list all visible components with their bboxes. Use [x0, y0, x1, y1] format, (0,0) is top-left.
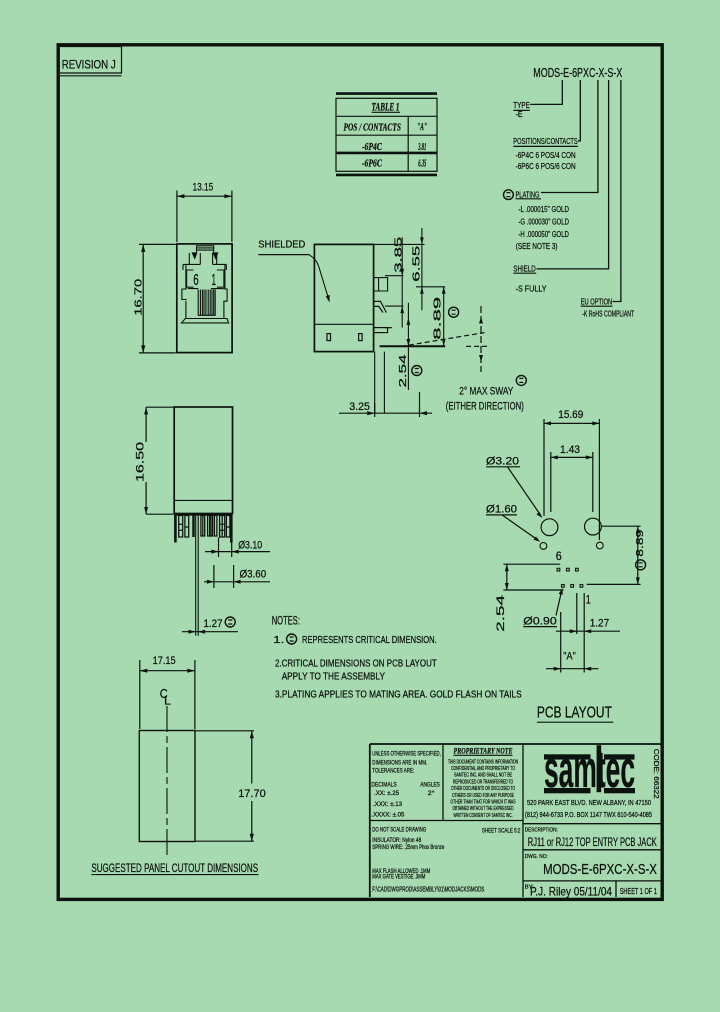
svg-text:Ø0.90: Ø0.90	[523, 616, 556, 628]
svg-text:15.69: 15.69	[558, 409, 583, 421]
svg-text:6: 6	[193, 272, 199, 289]
svg-text:1: 1	[586, 592, 591, 606]
svg-text:6.55: 6.55	[411, 245, 422, 282]
svg-text:CONFIDENTIAL AND PROPRIETARY T: CONFIDENTIAL AND PROPRIETARY TO	[451, 766, 515, 772]
svg-text:REPRODUCED OR TRANSFERRED TO: REPRODUCED OR TRANSFERRED TO	[453, 779, 513, 785]
svg-text:520 PARK EAST BLVD. NEW ALBANY: 520 PARK EAST BLVD. NEW ALBANY, IN 47150	[527, 800, 651, 807]
svg-text:DWG. NO:: DWG. NO:	[525, 854, 548, 860]
svg-text:6.35: 6.35	[418, 157, 426, 169]
svg-text:EU OPTION: EU OPTION	[581, 296, 613, 306]
svg-text:16.50: 16.50	[135, 442, 147, 482]
svg-text:OTHER THAN THAT FOR WHICH IT W: OTHER THAN THAT FOR WHICH IT WAS	[451, 800, 516, 806]
svg-text:1.43: 1.43	[560, 444, 580, 456]
svg-text:(812) 944-6733 P.O. BOX 1147: (812) 944-6733 P.O. BOX 1147 TWX 810-540…	[525, 812, 652, 819]
svg-text:-K RoHS COMPLIANT: -K RoHS COMPLIANT	[582, 309, 634, 318]
svg-text:REPRESENTS CRITICAL DIMENSION.: REPRESENTS CRITICAL DIMENSION.	[302, 635, 437, 646]
svg-text:2.54: 2.54	[398, 354, 409, 388]
svg-text:NOTES:: NOTES:	[272, 614, 300, 628]
svg-text:OTHER DOCUMENTS OR DISCLOSED T: OTHER DOCUMENTS OR DISCLOSED TO	[451, 786, 515, 792]
svg-text:DESCRIPTION:: DESCRIPTION:	[525, 828, 558, 834]
svg-text:.XXX: ±.13: .XXX: ±.13	[373, 801, 402, 808]
svg-text:SHEET 1 OF 1: SHEET 1 OF 1	[620, 886, 657, 896]
svg-text:Ø3.10: Ø3.10	[238, 540, 262, 552]
svg-text:8.89: 8.89	[635, 529, 646, 556]
svg-text:P.J. Riley 05/11/04: P.J. Riley 05/11/04	[530, 884, 612, 898]
svg-text:MODS-E-6PXC-X-S-X: MODS-E-6PXC-X-S-X	[543, 861, 657, 878]
svg-text:-6P6C 6 POS/6 CON: -6P6C 6 POS/6 CON	[516, 161, 576, 171]
svg-text:17.70: 17.70	[238, 788, 266, 800]
svg-text:PCB LAYOUT: PCB LAYOUT	[537, 705, 612, 722]
svg-text:OTHERS OR USED FOR ANY PURPOSE: OTHERS OR USED FOR ANY PURPOSE	[452, 793, 514, 799]
svg-text:SUGGESTED PANEL CUTOUT DIMENSI: SUGGESTED PANEL CUTOUT DIMENSIONS	[91, 861, 258, 875]
svg-text:ANGLES: ANGLES	[420, 781, 440, 788]
svg-text:POS / CONTACTS: POS / CONTACTS	[344, 122, 402, 134]
svg-text:-L .000015" GOLD: -L .000015" GOLD	[518, 204, 569, 214]
svg-text:2.54: 2.54	[495, 595, 507, 632]
svg-text:2° MAX SWAY: 2° MAX SWAY	[459, 385, 513, 397]
svg-text:3.81: 3.81	[418, 141, 426, 153]
svg-text:(EITHER DIRECTION): (EITHER DIRECTION)	[446, 400, 524, 412]
svg-text:6: 6	[556, 549, 562, 563]
svg-text:RJ11 or RJ12 TOP ENTRY PCB JA: RJ11 or RJ12 TOP ENTRY PCB JACK	[528, 835, 657, 849]
svg-text:-H .000050" GOLD: -H .000050" GOLD	[518, 229, 569, 239]
svg-text:Ø3.60: Ø3.60	[240, 569, 267, 581]
svg-text:SPRING WIRE: .25mm Phos Bronze: SPRING WIRE: .25mm Phos Bronze	[372, 844, 444, 851]
svg-text:WRITTEN CONSENT OF SAMTEC INC.: WRITTEN CONSENT OF SAMTEC INC.	[454, 813, 513, 819]
svg-text:SHEET SCALE 5:2: SHEET SCALE 5:2	[482, 827, 521, 834]
svg-text:-6P4C 6 POS/4 CON: -6P4C 6 POS/4 CON	[516, 150, 576, 160]
svg-text:APPLY TO THE ASSEMBLY: APPLY TO THE ASSEMBLY	[282, 672, 386, 683]
svg-text:-G .000030" GOLD: -G .000030" GOLD	[518, 217, 569, 227]
svg-text:DO NOT SCALE DRAWING: DO NOT SCALE DRAWING	[372, 826, 426, 833]
svg-text:CODE: 66322: CODE: 66322	[652, 749, 659, 799]
svg-text:2.CRITICAL DIMENSIONS ON PCB L: 2.CRITICAL DIMENSIONS ON PCB LAYOUT	[275, 658, 437, 669]
svg-text:SHIELD: SHIELD	[513, 263, 536, 273]
svg-text:F:\CAD\DWGPROD\ASSEMBLY\01\MOD: F:\CAD\DWGPROD\ASSEMBLY\01\MODJACKS\MODS	[372, 884, 484, 893]
svg-text:DECIMALS: DECIMALS	[371, 781, 397, 788]
svg-text:2°: 2°	[428, 789, 435, 797]
svg-text:Ø3.20: Ø3.20	[486, 456, 519, 468]
svg-text:1.: 1.	[273, 635, 284, 646]
svg-text:"A": "A"	[417, 121, 427, 133]
svg-text:.XX: ±.25: .XX: ±.25	[374, 790, 399, 797]
svg-text:TABLE 1: TABLE 1	[372, 102, 400, 114]
svg-text:17.15: 17.15	[153, 655, 176, 667]
svg-text:THIS DOCUMENT CONTAINS INFORMA: THIS DOCUMENT CONTAINS INFORMATION	[448, 759, 518, 765]
svg-text:Ø1.60: Ø1.60	[486, 503, 517, 515]
svg-text:.XXXX: ±.05: .XXXX: ±.05	[371, 811, 404, 818]
svg-text:DIMENSIONS ARE IN MM.: DIMENSIONS ARE IN MM.	[372, 759, 427, 766]
svg-text:-6P6C: -6P6C	[362, 157, 382, 169]
svg-text:OBTAINED WITHOUT THE EXPRESSED: OBTAINED WITHOUT THE EXPRESSED	[453, 806, 514, 812]
svg-text:3.85: 3.85	[394, 236, 405, 273]
svg-text:MAX GATE VESTIGE .3MM: MAX GATE VESTIGE .3MM	[372, 874, 425, 881]
svg-text:1.27: 1.27	[590, 618, 610, 630]
svg-text:-E: -E	[516, 110, 523, 119]
svg-text:SHIELDED: SHIELDED	[258, 238, 305, 250]
svg-text:"A": "A"	[563, 651, 576, 663]
svg-text:INSULATOR: Nylon 46: INSULATOR: Nylon 46	[372, 837, 421, 844]
svg-text:UNLESS OTHERWISE SPECIFIED,: UNLESS OTHERWISE SPECIFIED,	[372, 750, 441, 757]
svg-text:PLATING: PLATING	[516, 189, 540, 199]
svg-text:13.15: 13.15	[193, 182, 214, 194]
svg-text:-S FULLY: -S FULLY	[516, 283, 547, 293]
svg-text:MODS-E-6PXC-X-S-X: MODS-E-6PXC-X-S-X	[533, 66, 622, 80]
svg-text:POSITIONS/CONTACTS: POSITIONS/CONTACTS	[513, 136, 578, 146]
svg-text:REVISION J: REVISION J	[62, 60, 116, 72]
svg-text:PROPRIETARY NOTE: PROPRIETARY NOTE	[454, 747, 513, 756]
svg-text:8.89: 8.89	[433, 296, 444, 340]
svg-text:SAMTEC INC. AND SHALL NOT BE: SAMTEC INC. AND SHALL NOT BE	[454, 773, 512, 779]
svg-text:TOLERANCES ARE:: TOLERANCES ARE:	[372, 767, 414, 774]
svg-text:1.27: 1.27	[204, 618, 223, 630]
svg-text:3.PLATING APPLIES TO MATING AR: 3.PLATING APPLIES TO MATING AREA. GOLD F…	[275, 689, 522, 700]
svg-text:L: L	[164, 694, 171, 708]
svg-text:3.25: 3.25	[349, 401, 370, 413]
svg-text:(SEE NOTE 3): (SEE NOTE 3)	[516, 241, 558, 251]
svg-text:samtec: samtec	[544, 741, 635, 799]
svg-text:1: 1	[212, 272, 217, 289]
svg-text:TYPE: TYPE	[513, 100, 530, 110]
svg-text:-6P4C: -6P4C	[362, 141, 382, 153]
